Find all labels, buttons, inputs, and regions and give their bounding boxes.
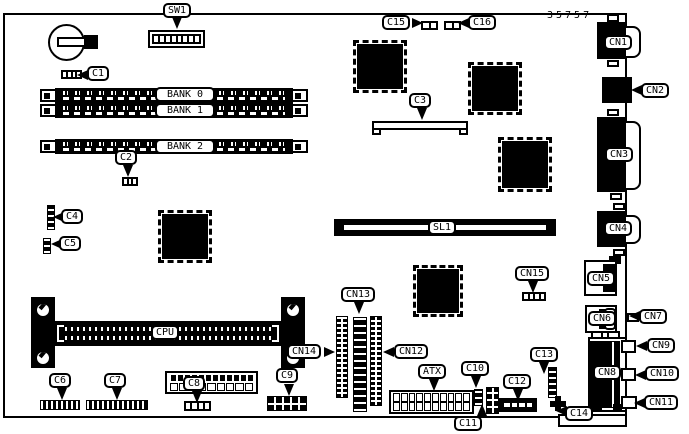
label-c2: C2	[115, 150, 137, 165]
battery-key-bar	[57, 37, 87, 47]
label-cn13: CN13	[341, 287, 375, 302]
label-c3: C3	[409, 93, 431, 108]
label-c8: C8	[183, 376, 205, 391]
connector-cn9	[621, 340, 636, 353]
label-bank2: BANK 2	[155, 139, 215, 154]
label-cn1: CN1	[604, 35, 632, 50]
connector-cn2	[602, 77, 632, 103]
edge-tab	[610, 193, 622, 200]
label-sl1: SL1	[428, 220, 456, 235]
atx-power-connector	[389, 390, 474, 414]
ic-chip-4	[158, 210, 212, 263]
connector-c13	[548, 367, 557, 398]
connector-cn10	[621, 368, 636, 381]
label-cn10: CN10	[645, 366, 679, 381]
label-c15: C15	[382, 15, 410, 30]
ic-chip-3	[498, 137, 552, 192]
part-number: 35757	[547, 10, 592, 21]
label-c5: C5	[59, 236, 81, 251]
edge-tab	[613, 249, 625, 256]
label-c11: C11	[454, 416, 482, 431]
label-cn11: CN11	[644, 395, 678, 410]
connector-c5	[43, 238, 51, 254]
connector-c15	[421, 21, 438, 30]
edge-tab	[607, 60, 619, 67]
connector-c6	[40, 400, 80, 410]
ic-chip-2	[468, 62, 522, 115]
label-c14: C14	[565, 406, 593, 421]
label-c10: C10	[461, 361, 489, 376]
label-cn14: CN14	[287, 344, 321, 359]
label-c13: C13	[530, 347, 558, 362]
slot-cn12	[370, 316, 382, 406]
label-cn3: CN3	[605, 147, 633, 162]
label-c7: C7	[104, 373, 126, 388]
label-cn12: CN12	[394, 344, 428, 359]
battery-key-tip	[84, 35, 98, 49]
label-sw1: SW1	[163, 3, 191, 18]
edge-tab	[607, 109, 619, 116]
cpu-retention-left	[31, 297, 55, 368]
slot-cn13	[353, 317, 367, 412]
connector-c11	[486, 387, 499, 414]
label-cn4: CN4	[604, 221, 632, 236]
label-bank1: BANK 1	[155, 103, 215, 118]
motherboard-diagram: 35757 SW1 C1 BANK 0 BANK 1 BANK 2 C2 C15…	[0, 0, 689, 434]
connector-c7	[86, 400, 148, 410]
label-atx: ATX	[418, 364, 446, 379]
ic-chip-5	[413, 265, 463, 317]
edge-tab	[613, 203, 625, 210]
dip-switch-sw1	[148, 30, 205, 48]
label-bank0: BANK 0	[155, 87, 215, 102]
label-c6: C6	[49, 373, 71, 388]
socket-c3	[372, 121, 468, 130]
label-cn7: CN7	[639, 309, 667, 324]
label-cn5: CN5	[587, 271, 615, 286]
label-cn9: CN9	[647, 338, 675, 353]
label-cn2: CN2	[641, 83, 669, 98]
label-cpu: CPU	[151, 325, 179, 340]
label-c16: C16	[468, 15, 496, 30]
label-c1: C1	[87, 66, 109, 81]
connector-c2	[122, 177, 138, 186]
label-cn6: CN6	[588, 311, 616, 326]
ic-chip-1	[353, 40, 407, 93]
slot-cn14	[336, 316, 348, 398]
label-cn8: CN8	[593, 365, 621, 380]
connector-c9	[267, 396, 307, 411]
label-c12: C12	[503, 374, 531, 389]
label-c4: C4	[61, 209, 83, 224]
label-c9: C9	[276, 368, 298, 383]
component-c8	[165, 371, 258, 394]
connector-cn15	[522, 292, 546, 301]
cn8-foot	[592, 404, 602, 411]
edge-tab	[607, 14, 619, 22]
label-cn15: CN15	[515, 266, 549, 281]
